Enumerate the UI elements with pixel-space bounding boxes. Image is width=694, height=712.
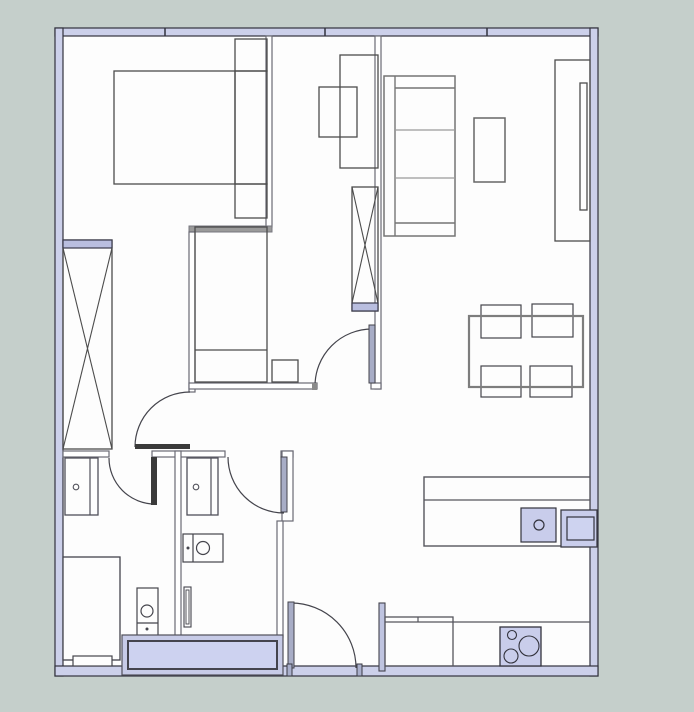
bedroom2-door-leaf xyxy=(369,325,375,383)
wall-right xyxy=(590,28,598,676)
wall-left xyxy=(55,28,63,676)
floorplan-page xyxy=(0,0,694,712)
wall-bedroom2-south-west xyxy=(189,383,317,389)
entry-door-post-west xyxy=(287,664,292,676)
shower-step xyxy=(73,656,112,666)
wall-bath-divider xyxy=(175,451,181,637)
wall-bedroom2-south-east xyxy=(371,383,381,389)
stove xyxy=(500,627,541,666)
sink-unit xyxy=(521,508,556,542)
wardrobe-b-bottom-bar xyxy=(352,303,378,311)
floorplan-svg xyxy=(0,0,694,712)
bathtub-inner xyxy=(128,641,277,669)
wall-bedroom2-west xyxy=(189,232,195,392)
toilet-left-button xyxy=(146,628,149,631)
wall-bath-east-lower xyxy=(277,521,283,637)
wall-appliance-inner xyxy=(567,517,594,540)
shower xyxy=(63,557,120,660)
wall-bath-north-mid xyxy=(152,451,225,457)
bedroom1-door-leaf xyxy=(135,444,190,449)
entry-door-post-east xyxy=(357,664,362,676)
wardrobe-a-top-bar xyxy=(63,240,112,248)
wall-bath-north-west xyxy=(63,451,109,457)
wall-top xyxy=(55,28,598,36)
bedroom2-door-post xyxy=(312,383,317,390)
counter-end-panel xyxy=(379,603,385,671)
bath-right-door-leaf xyxy=(281,457,287,512)
toilet-right-button xyxy=(187,547,190,550)
bath-left-door-leaf xyxy=(151,457,157,505)
entry-door-leaf xyxy=(288,602,294,668)
